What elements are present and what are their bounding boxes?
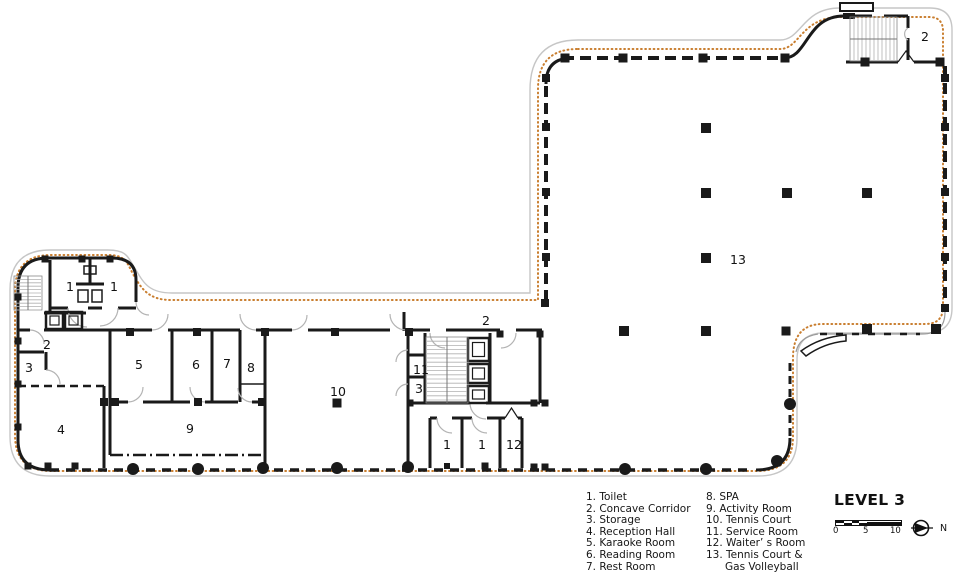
column-marker	[701, 326, 711, 336]
round-column-marker	[700, 463, 712, 475]
column-marker	[781, 54, 790, 63]
room-label: 3	[25, 360, 33, 375]
column-marker	[941, 304, 949, 312]
room-labels: 11234567891011321112213	[25, 29, 929, 452]
column-marker	[542, 400, 549, 407]
room-label: 2	[43, 337, 51, 352]
legend-item: 7. Rest Room	[586, 562, 691, 574]
column-marker	[531, 464, 538, 471]
column-marker	[701, 253, 711, 263]
room-label: 1	[66, 279, 74, 294]
column-marker	[561, 54, 570, 63]
column-marker	[861, 58, 870, 67]
column-marker	[79, 256, 86, 263]
walls-dashed	[18, 58, 945, 470]
column-marker	[542, 188, 550, 196]
column-marker	[862, 188, 872, 198]
column-marker	[701, 123, 711, 133]
column-marker	[941, 253, 949, 261]
room-label: 7	[223, 356, 231, 371]
column-marker	[701, 188, 711, 198]
column-marker	[407, 400, 414, 407]
column-marker	[15, 294, 22, 301]
round-column-marker	[331, 462, 343, 474]
canopy-block	[843, 13, 855, 19]
column-marker	[193, 328, 201, 336]
plan-title: LEVEL 3	[834, 491, 905, 509]
column-marker	[42, 256, 49, 263]
legend-item: 6. Reading Room	[586, 550, 691, 562]
room-label: 2	[921, 29, 929, 44]
scale-tick-label: 10	[890, 526, 901, 536]
column-marker	[941, 123, 949, 131]
round-column-marker	[619, 463, 631, 475]
column-marker	[15, 381, 22, 388]
scale-bar: 0510	[835, 520, 902, 537]
north-label: N	[940, 523, 947, 534]
north-arrow-icon	[905, 517, 939, 539]
round-column-marker	[771, 455, 783, 467]
column-marker	[542, 253, 550, 261]
column-marker	[619, 54, 628, 63]
column-marker	[782, 188, 792, 198]
column-marker	[331, 328, 339, 336]
column-marker	[15, 424, 22, 431]
floor-plan-page: 11234567891011321112213 1. Toilet2. Conc…	[0, 0, 960, 587]
column-marker	[941, 188, 949, 196]
floor-plan-svg: 11234567891011321112213	[0, 0, 960, 587]
column-marker	[194, 398, 202, 406]
round-column-marker	[257, 462, 269, 474]
column-marker	[782, 327, 791, 336]
column-marker	[261, 328, 269, 336]
scale-ticks: 0510	[835, 526, 902, 537]
round-column-marker	[784, 398, 796, 410]
column-marker	[444, 463, 450, 469]
north-arrow: N	[905, 517, 947, 539]
legend-column-1: 1. Toilet2. Concave Corridor3. Storage4.…	[586, 492, 691, 573]
column-marker	[542, 74, 550, 82]
stair-icons	[14, 17, 897, 403]
column-marker	[497, 331, 504, 338]
room-label: 10	[330, 384, 346, 399]
room-label: 3	[415, 381, 423, 396]
room-label: 13	[730, 252, 746, 267]
column-marker	[862, 324, 872, 334]
column-marker	[699, 54, 708, 63]
room-label: 2	[482, 313, 490, 328]
room-label: 4	[57, 422, 65, 437]
column-marker	[45, 463, 52, 470]
column-marker	[542, 123, 550, 131]
double-door-symbols	[505, 51, 914, 418]
column-marker	[25, 463, 32, 470]
round-column-marker	[402, 461, 414, 473]
column-marker	[936, 58, 945, 67]
room-label: 8	[247, 360, 255, 375]
legend-item: 13. Tennis Court &	[706, 550, 805, 562]
columns-layer	[15, 54, 950, 476]
column-marker	[482, 463, 489, 470]
room-label: 5	[135, 357, 143, 372]
column-marker	[15, 338, 22, 345]
scale-tick-label: 0	[833, 526, 838, 536]
room-label: 6	[192, 357, 200, 372]
room-label: 1	[478, 437, 486, 452]
column-marker	[931, 324, 941, 334]
round-column-marker	[192, 463, 204, 475]
room-label: 11	[413, 362, 429, 377]
scale-tick-label: 5	[863, 526, 868, 536]
column-marker	[72, 463, 79, 470]
column-marker	[111, 398, 119, 406]
column-marker	[100, 398, 108, 406]
legend-item: 1. Toilet	[586, 492, 691, 504]
canopy	[840, 3, 873, 11]
column-marker	[542, 464, 549, 471]
room-label: 1	[443, 437, 451, 452]
round-column-marker	[127, 463, 139, 475]
room-label: 9	[186, 421, 194, 436]
column-marker	[541, 299, 549, 307]
column-marker	[107, 256, 114, 263]
escalator-shape	[801, 335, 846, 356]
outer-boundary	[10, 8, 952, 476]
column-marker	[941, 74, 949, 82]
column-marker	[333, 399, 342, 408]
column-marker	[258, 398, 266, 406]
column-marker	[537, 331, 544, 338]
column-marker	[531, 400, 538, 407]
column-marker	[405, 328, 413, 336]
column-marker	[619, 326, 629, 336]
column-marker	[126, 328, 134, 336]
legend-item: 8. SPA	[706, 492, 805, 504]
legend-item: Gas Volleyball	[706, 562, 805, 574]
room-label: 12	[506, 437, 522, 452]
legend-column-2: 8. SPA9. Activity Room10. Tennis Court11…	[706, 492, 805, 573]
room-label: 1	[110, 279, 118, 294]
